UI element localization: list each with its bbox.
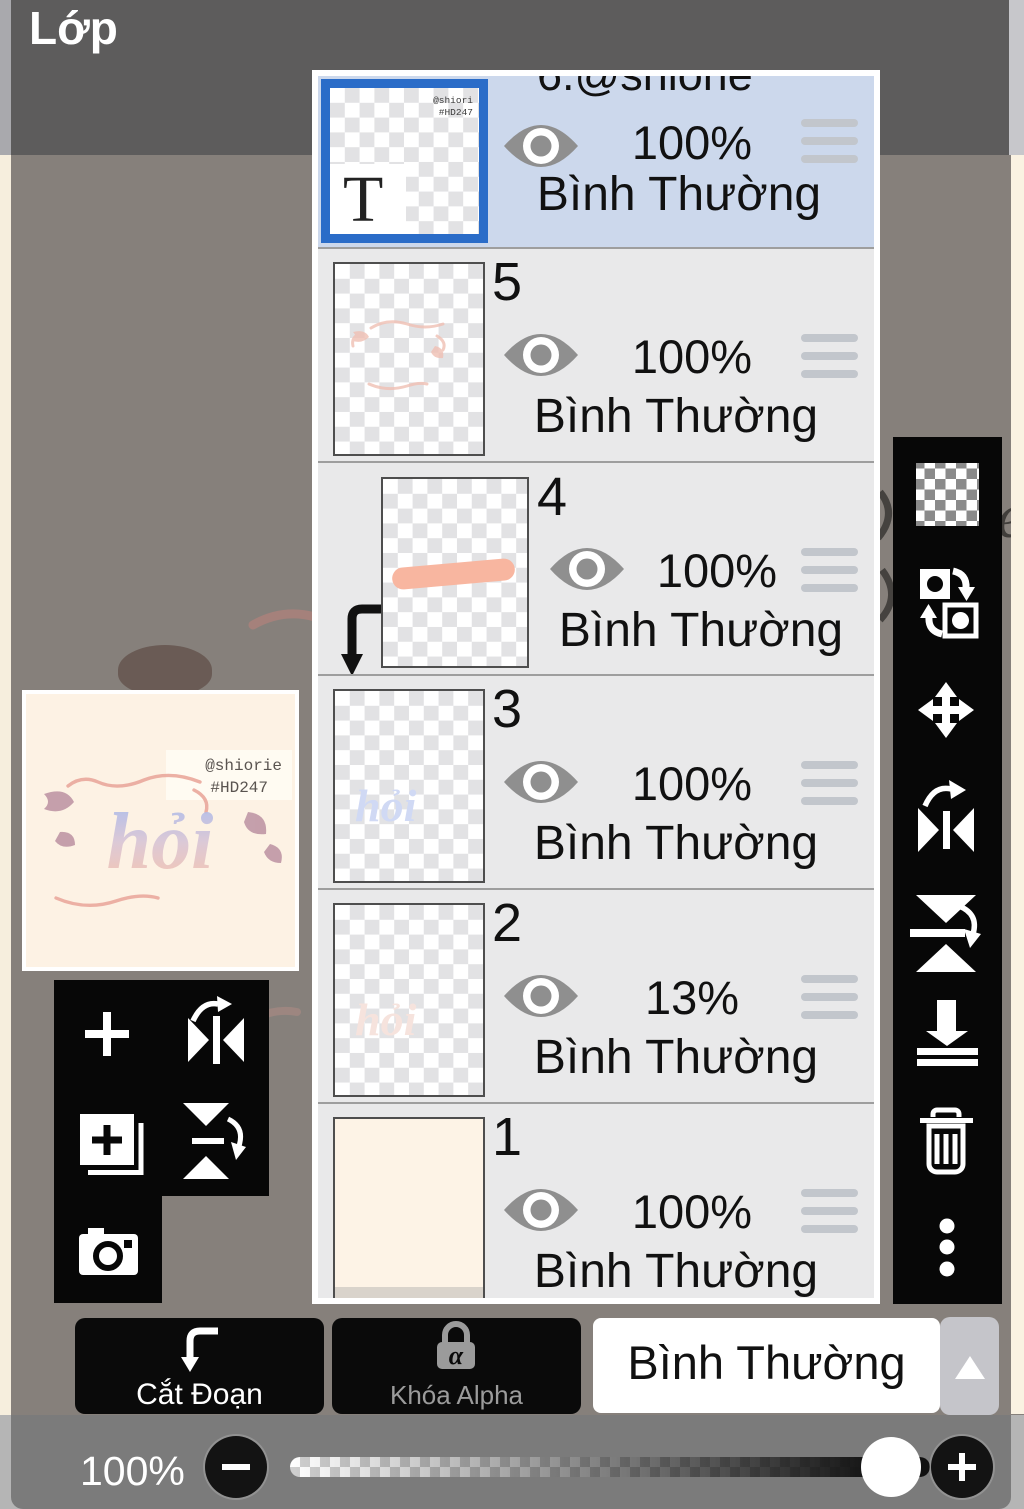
svg-text:@shiorie: @shiorie [205, 757, 282, 775]
svg-text:#HD247: #HD247 [210, 779, 268, 797]
svg-text:α: α [449, 1341, 464, 1370]
svg-text:hỏi: hỏi [107, 798, 214, 886]
